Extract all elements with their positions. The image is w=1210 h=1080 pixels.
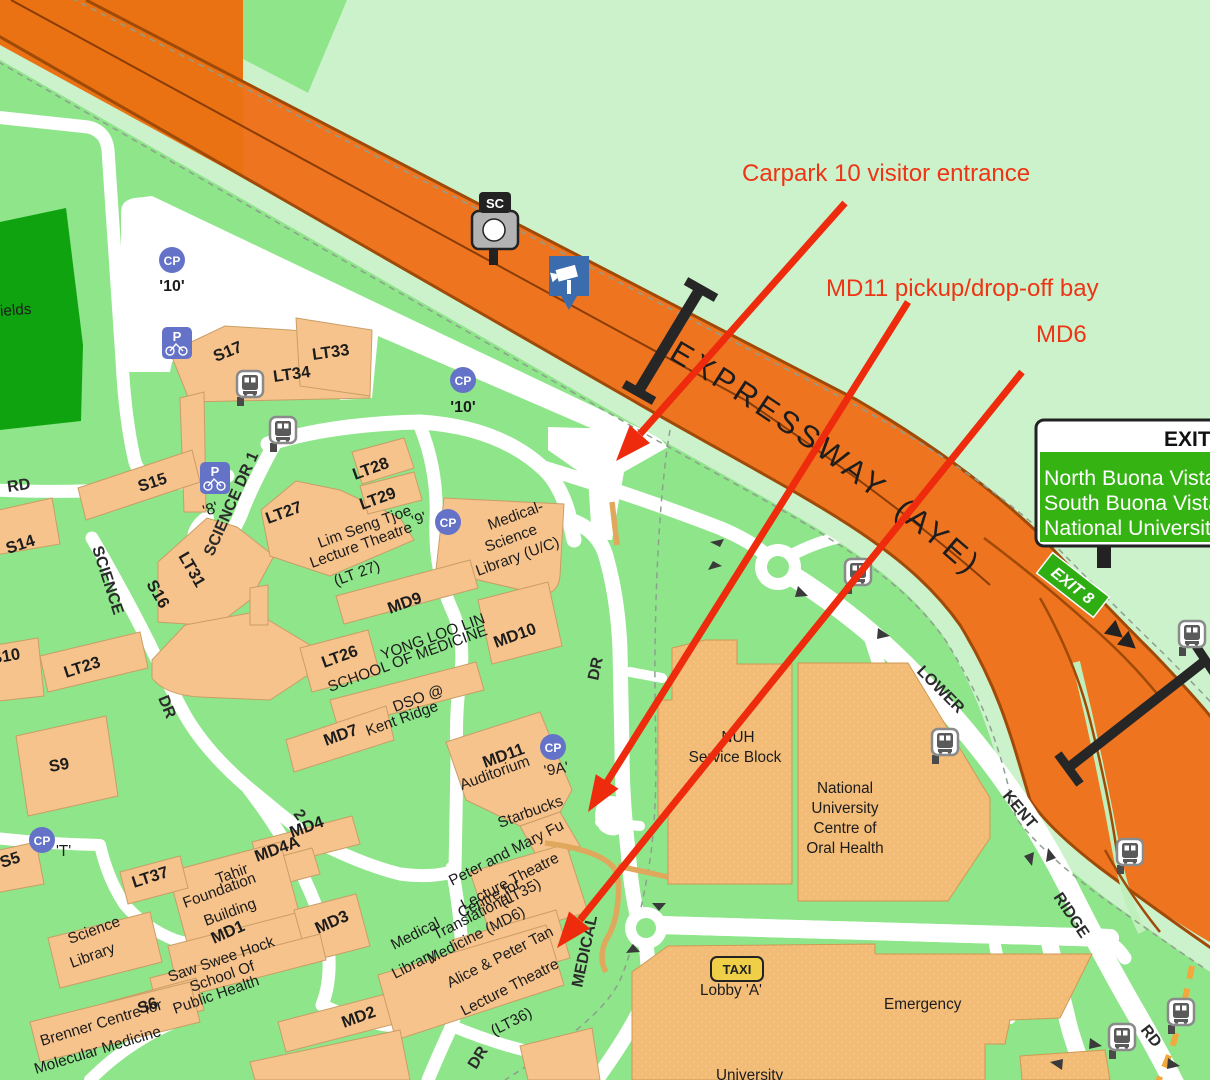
svg-text:EXIT 8: EXIT 8	[1164, 428, 1210, 451]
svg-text:Emergency: Emergency	[884, 996, 962, 1013]
svg-text:S9: S9	[48, 755, 71, 776]
svg-text:CP: CP	[455, 374, 472, 388]
svg-text:National: National	[817, 780, 873, 797]
svg-text:CP: CP	[545, 741, 562, 755]
svg-text:Lobby 'A': Lobby 'A'	[700, 982, 762, 999]
svg-text:Carpark 10 visitor entrance: Carpark 10 visitor entrance	[742, 160, 1030, 187]
svg-text:North Buona Vista: North Buona Vista	[1044, 466, 1210, 490]
svg-text:P: P	[173, 329, 182, 344]
svg-text:CP: CP	[164, 254, 181, 268]
svg-text:University: University	[811, 800, 878, 817]
svg-text:'10': '10'	[450, 399, 475, 416]
svg-text:Fields: Fields	[0, 301, 32, 321]
svg-text:South Buona Vista: South Buona Vista	[1044, 491, 1210, 515]
svg-text:'T': 'T'	[56, 843, 71, 860]
svg-text:MD11 pickup/drop-off bay: MD11 pickup/drop-off bay	[826, 275, 1099, 302]
svg-text:Oral Health: Oral Health	[806, 840, 883, 857]
svg-text:National University: National University	[1044, 516, 1210, 540]
svg-text:TAXI: TAXI	[723, 962, 752, 977]
svg-text:Centre of: Centre of	[814, 820, 878, 837]
svg-text:CP: CP	[440, 516, 457, 530]
svg-text:P: P	[211, 464, 220, 479]
svg-text:RD: RD	[6, 476, 31, 496]
svg-text:University: University	[716, 1067, 783, 1080]
svg-text:SC: SC	[486, 196, 505, 211]
svg-text:'10': '10'	[159, 278, 184, 295]
svg-text:CP: CP	[34, 834, 51, 848]
svg-text:MD6: MD6	[1036, 321, 1087, 348]
